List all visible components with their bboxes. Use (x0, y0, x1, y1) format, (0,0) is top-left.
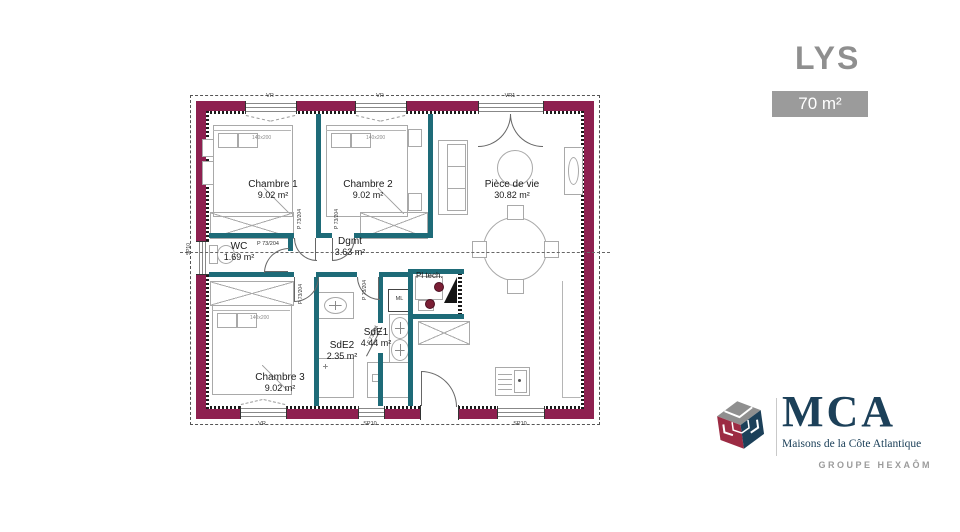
room-area: 9.02 m² (318, 190, 418, 200)
window-label: VR1 (495, 93, 525, 99)
pillow (218, 133, 238, 148)
room-label-chambre2: Chambre 2 9.02 m² (318, 179, 418, 200)
bed-headboard (213, 130, 291, 131)
room-name: Chambre 1 (223, 179, 323, 190)
hall-wall-bottom (316, 272, 357, 277)
shower-drain (321, 362, 329, 370)
partition-sde1-living (408, 269, 413, 406)
kitchen-sink-bowl (568, 157, 579, 185)
partition-ch2-living (428, 114, 433, 238)
brand-subtitle: Maisons de la Côte Atlantique (782, 438, 921, 450)
nightstand (202, 161, 214, 185)
window-label: VR (247, 421, 277, 427)
entry-door-opening (420, 405, 459, 420)
pillow (331, 133, 351, 148)
room-area: 9.02 m² (223, 190, 323, 200)
partition-ch1-ch2 (316, 114, 321, 238)
area-badge: 70 m² (772, 91, 868, 117)
bed-headboard (326, 130, 406, 131)
door-size-label: P 73/204 (297, 209, 303, 229)
bed-dimension-label: 140x200 (366, 135, 385, 141)
door-size-label: P 73/204 (362, 280, 368, 300)
kitchen-counter-line (562, 281, 563, 397)
door-leaf (264, 271, 288, 272)
door-size-label: P 73/204 (298, 284, 304, 304)
door-size-label: P 73/204 (254, 241, 282, 247)
chair (472, 241, 487, 258)
pillow (217, 313, 237, 328)
room-area: 4.44 m² (346, 338, 406, 348)
tech-valve (425, 299, 435, 309)
mca-cube-icon (710, 396, 772, 462)
door-leaf (421, 371, 422, 406)
window-label: VR (365, 93, 395, 99)
mca-logo-block: MCA Maisons de la Côte Atlantique GROUPE… (710, 394, 940, 476)
room-name: Pièce de vie (462, 179, 562, 190)
sde2-basin (324, 297, 347, 314)
room-area: 1.69 m² (204, 252, 274, 262)
room-name: Chambre 2 (318, 179, 418, 190)
window-label: SP10 (505, 421, 535, 427)
door-size-label: P 73/204 (334, 209, 340, 229)
tech-triangle-symbol (444, 277, 457, 303)
bed-dimension-label: 140x200 (252, 135, 271, 141)
dining-table (483, 217, 547, 281)
door-leaf (294, 277, 295, 301)
closet-living (418, 321, 470, 345)
nightstand (408, 129, 422, 147)
appliance-knob (518, 379, 521, 382)
room-label-pl-tech: Pl tech. (416, 271, 443, 280)
sofa-cushion (447, 144, 466, 167)
room-area: 2.35 m² (312, 351, 372, 361)
chair (507, 205, 524, 220)
chair (507, 279, 524, 294)
bed-dimension-label: 140x200 (250, 315, 269, 321)
hall-wall-top (209, 233, 294, 238)
chair (544, 241, 559, 258)
room-label-chambre3: Chambre 3 9.02 m² (230, 372, 330, 393)
window-label-left: SP10 (186, 243, 192, 255)
wardrobe-chambre3 (210, 281, 294, 306)
floor-plan: 140x200 140x200 140x200 (190, 95, 600, 425)
appliance-vents (498, 371, 512, 390)
nightstand (202, 139, 214, 157)
kitchen-counter-line (562, 397, 581, 398)
brand-name: MCA (782, 386, 896, 437)
logo-divider (776, 398, 777, 456)
window-chambre1 (245, 101, 297, 114)
tech-valve (434, 282, 444, 292)
room-area: 9.02 m² (230, 383, 330, 393)
exterior-wall-right (584, 101, 594, 419)
window-chambre3 (240, 406, 287, 419)
brand-group: GROUPE HEXAÔM (790, 460, 932, 470)
bed-headboard (212, 310, 290, 311)
door-leaf (378, 277, 379, 299)
window-sde1 (358, 406, 385, 419)
pltech-wall-bottom (408, 314, 464, 319)
room-area: 30.82 m² (462, 190, 562, 200)
french-door-living (478, 101, 544, 114)
model-title: LYS (795, 40, 860, 77)
room-name: Dgmt (300, 236, 400, 247)
tech-hatch-strip (458, 273, 462, 315)
room-area: 3.63 m² (300, 247, 400, 257)
partition-sde2-sde1 (378, 353, 383, 406)
floor-plan-page: LYS 70 m² 140x200 140x200 (0, 0, 960, 532)
window-label: VR (255, 93, 285, 99)
window-living-bottom (497, 406, 545, 419)
room-label-dgmt: Dgmt 3.63 m² (300, 236, 400, 257)
room-label-chambre1: Chambre 1 9.02 m² (223, 179, 323, 200)
window-label: SP10 (355, 421, 385, 427)
window-chambre2 (355, 101, 407, 114)
room-label-piece-de-vie: Pièce de vie 30.82 m² (462, 179, 562, 200)
room-name: Chambre 3 (230, 372, 330, 383)
